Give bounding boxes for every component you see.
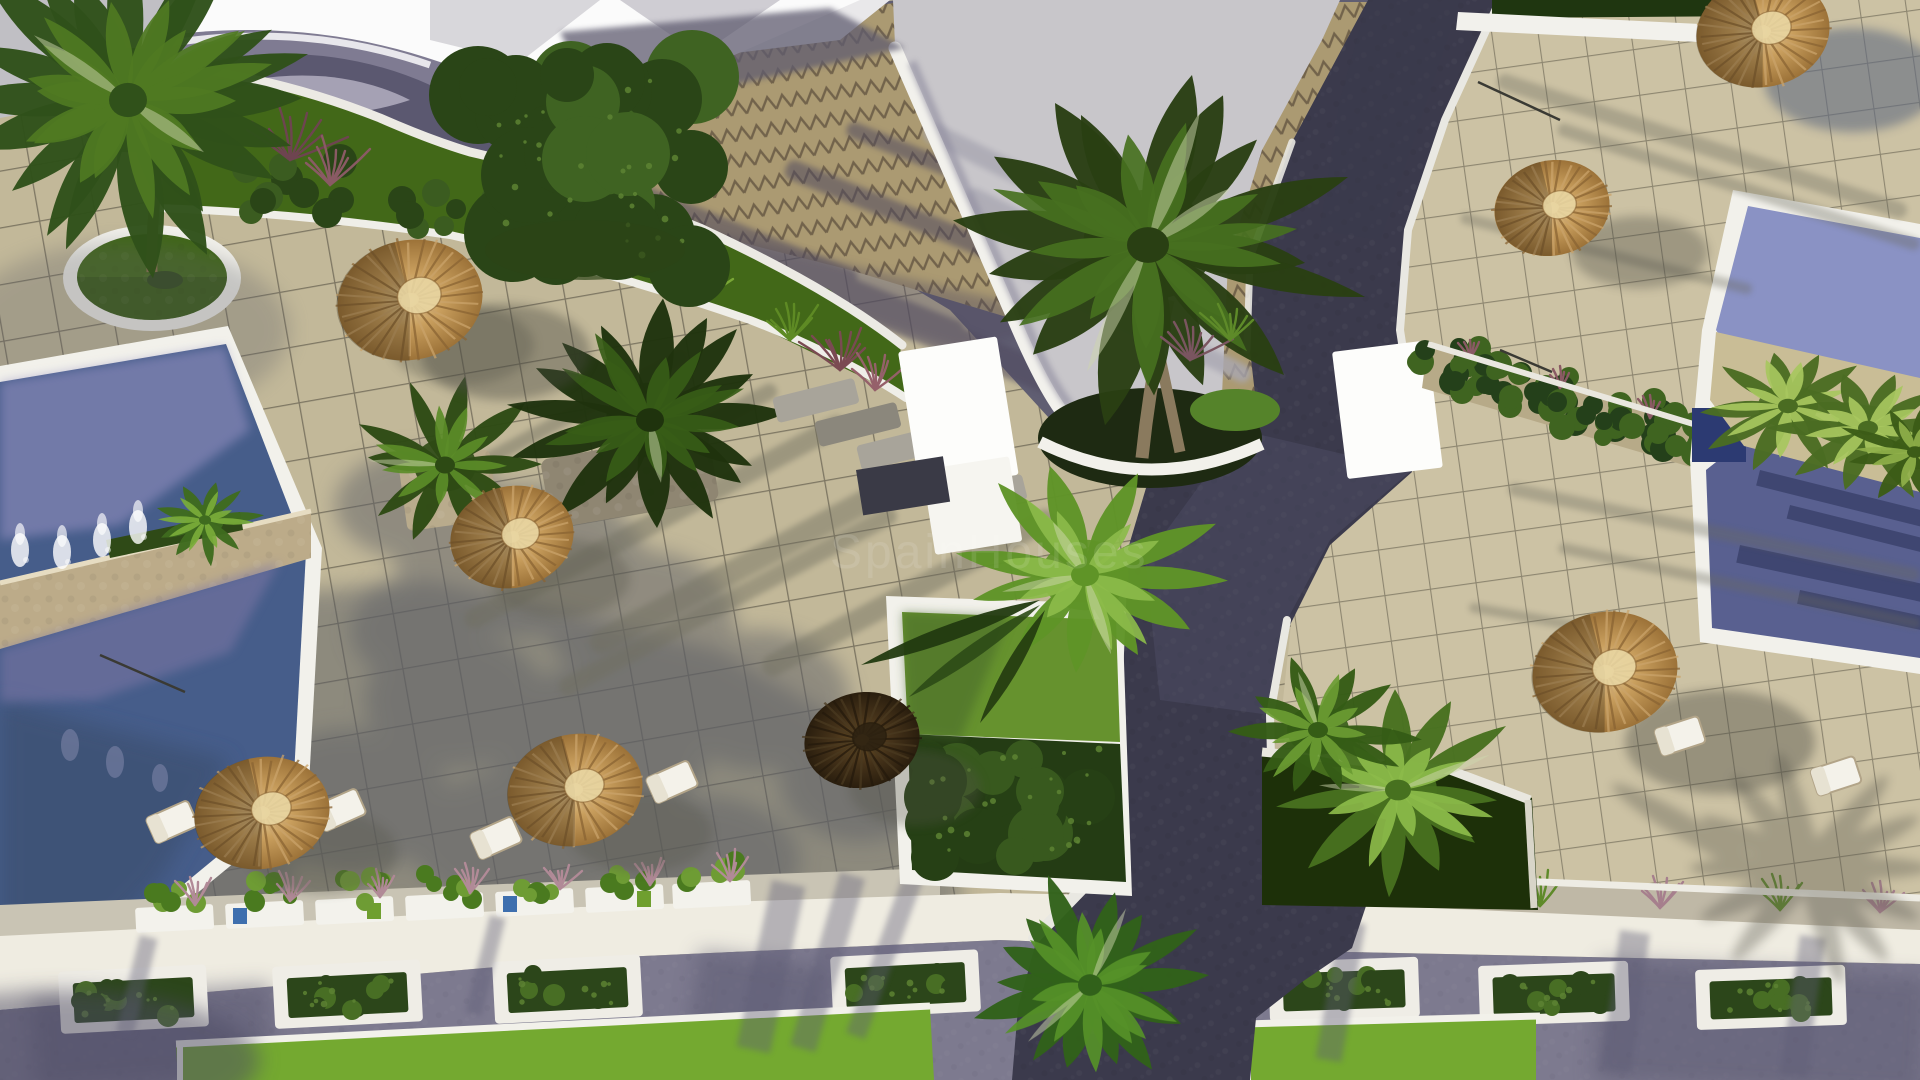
svg-text:SpainHouses: SpainHouses <box>830 526 1149 579</box>
